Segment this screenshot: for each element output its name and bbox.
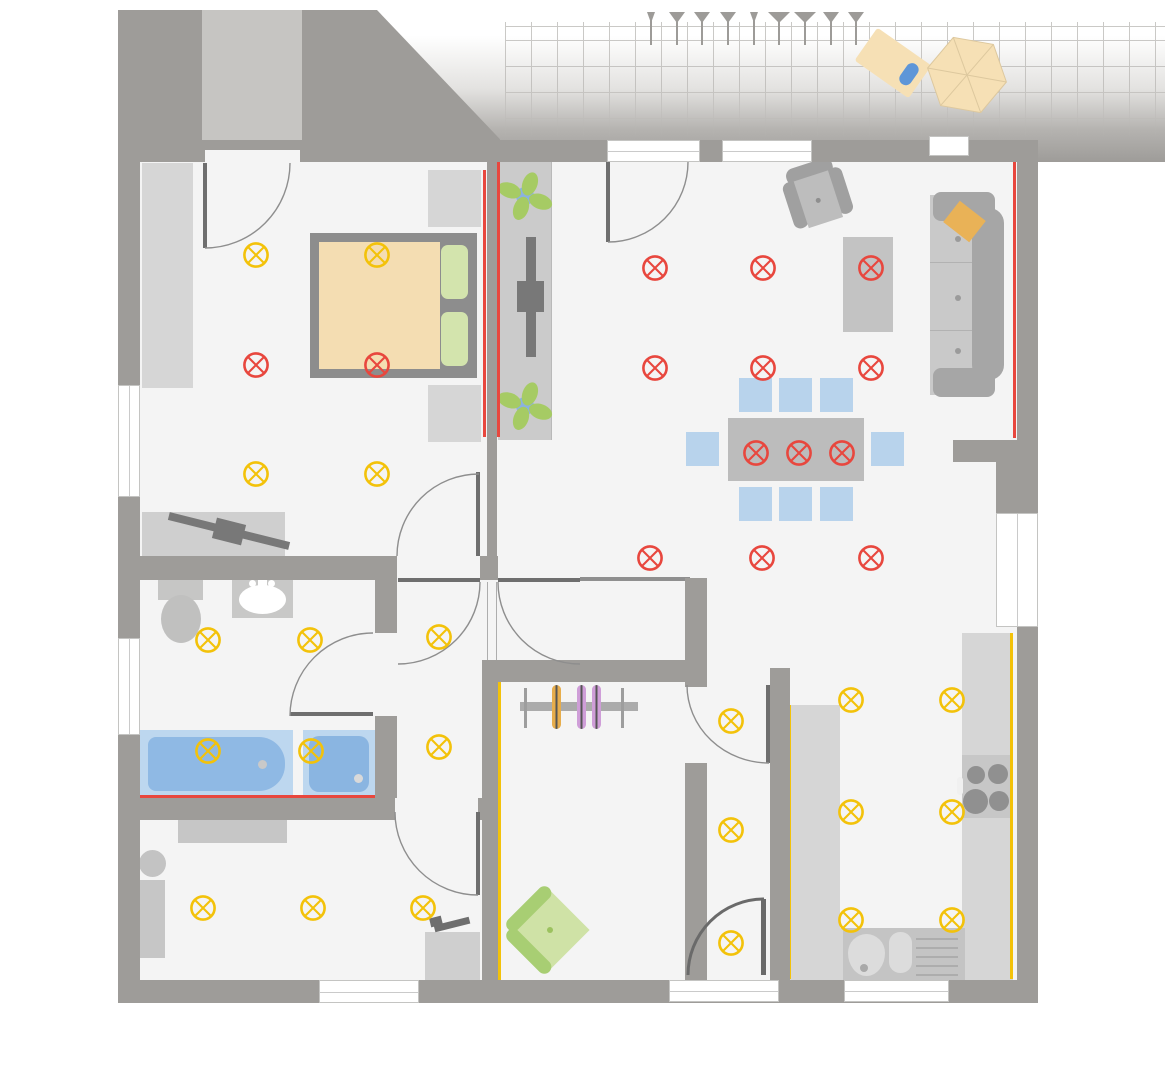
sofa-button	[955, 295, 961, 301]
wall-dressing-west	[482, 660, 498, 1003]
wall-bathroom-east-upper	[375, 580, 397, 633]
sofa-armrest-bottom	[933, 368, 995, 397]
ceiling-light-yellow[interactable]	[938, 686, 966, 714]
wall-bedroom-south-pier	[480, 556, 498, 580]
bathroom-sink-counter[interactable]	[232, 578, 293, 618]
ceiling-light-red[interactable]	[641, 354, 669, 382]
ceiling-light-red[interactable]	[857, 254, 885, 282]
ceiling-light-yellow[interactable]	[194, 737, 222, 765]
ceiling-light-yellow[interactable]	[297, 737, 325, 765]
radiator-strip-red	[497, 162, 500, 437]
sofa-backrest	[972, 208, 1004, 380]
burner	[967, 766, 985, 784]
led-strip-yellow	[498, 682, 501, 1003]
shower-drain	[354, 774, 363, 783]
window-living-north	[722, 140, 812, 162]
window-niche-north	[929, 136, 969, 156]
fence-tick-triangle	[794, 12, 816, 23]
stove-handle	[957, 777, 963, 795]
ceiling-light-red[interactable]	[857, 354, 885, 382]
wall-right-inner	[996, 462, 1017, 513]
living-tv-mount	[517, 281, 544, 312]
sink-faucet	[249, 580, 256, 587]
dining-chair[interactable]	[686, 432, 719, 466]
sink-faucet	[268, 580, 275, 587]
rail-tick	[621, 688, 624, 728]
ceiling-light-yellow[interactable]	[717, 929, 745, 957]
ceiling-light-yellow[interactable]	[938, 906, 966, 934]
ceiling-light-yellow[interactable]	[194, 626, 222, 654]
drainer-line	[916, 974, 958, 976]
study-round-chair[interactable]	[139, 850, 166, 877]
fence-tick-triangle	[669, 12, 685, 23]
fence-tick-triangle	[720, 12, 736, 23]
ceiling-light-red[interactable]	[748, 544, 776, 572]
stove[interactable]	[962, 755, 1013, 818]
fence-tick-triangle	[848, 12, 864, 23]
window-kitchen-south	[844, 980, 949, 1002]
bed-frame[interactable]	[310, 233, 477, 378]
wall-dressing-north	[482, 660, 690, 682]
ceiling-light-yellow[interactable]	[938, 798, 966, 826]
vestibule-doorway	[205, 150, 300, 162]
window-bathroom-west	[118, 638, 140, 735]
dining-sideboard[interactable]	[843, 237, 893, 332]
ceiling-light-red[interactable]	[363, 351, 391, 379]
wall-bathroom-east-lower	[375, 716, 397, 798]
kitchen-sink-unit[interactable]	[843, 928, 965, 980]
parasol[interactable]	[925, 33, 1011, 119]
partition-corridor-entry	[487, 582, 497, 660]
nightstand-top[interactable]	[428, 170, 481, 227]
rail-tick	[524, 688, 527, 728]
wall-hallway-west-lower	[685, 763, 707, 980]
ceiling-light-yellow[interactable]	[242, 241, 270, 269]
kitchen-sink-basin2	[889, 932, 912, 973]
stairwell-vestibule	[202, 10, 302, 150]
entrance-opening-south[interactable]	[669, 980, 779, 1002]
hanger-purple[interactable]	[577, 685, 586, 729]
ceiling-light-yellow[interactable]	[837, 686, 865, 714]
lounger-pillow	[897, 61, 921, 88]
window-bedroom-west	[118, 385, 140, 497]
hanger-purple[interactable]	[592, 685, 601, 729]
burner	[988, 764, 1008, 784]
burner	[989, 791, 1009, 811]
window-study-south	[319, 980, 419, 1003]
fence-tick-triangle	[750, 12, 758, 23]
wall-bedroom-south	[140, 556, 397, 580]
dining-chair[interactable]	[871, 432, 904, 466]
led-strip-yellow	[1010, 633, 1013, 979]
ceiling-light-yellow[interactable]	[717, 816, 745, 844]
dining-chair[interactable]	[820, 378, 853, 412]
ceiling-light-yellow[interactable]	[363, 241, 391, 269]
kitchen-sink-drain	[860, 964, 868, 972]
ceiling-light-yellow[interactable]	[242, 460, 270, 488]
wall-kitchen-west	[770, 668, 790, 980]
dining-chair[interactable]	[779, 487, 812, 521]
wall-nib-right	[953, 440, 1017, 462]
sofa-button	[955, 236, 961, 242]
dining-chair[interactable]	[739, 378, 772, 412]
study-shelf[interactable]	[140, 880, 165, 958]
fence-tick-triangle	[768, 12, 790, 23]
wall-bathroom-south	[118, 798, 395, 820]
fence-tick-triangle	[647, 12, 655, 23]
bed-pillow-2	[441, 312, 468, 366]
sofa-button	[955, 348, 961, 354]
bathtub-drain	[258, 760, 267, 769]
ceiling-light-yellow[interactable]	[717, 707, 745, 735]
ceiling-light-red[interactable]	[641, 254, 669, 282]
fence-tick-triangle	[694, 12, 710, 23]
ceiling-light-red[interactable]	[636, 544, 664, 572]
study-sideboard[interactable]	[178, 820, 287, 843]
ceiling-light-yellow[interactable]	[409, 894, 437, 922]
bed-pillow-1	[441, 245, 468, 299]
ceiling-light-yellow[interactable]	[299, 894, 327, 922]
ceiling-light-yellow[interactable]	[189, 894, 217, 922]
drainer-line	[916, 965, 958, 967]
ceiling-light-red[interactable]	[742, 439, 770, 467]
wall-left	[118, 140, 140, 1003]
ceiling-light-red[interactable]	[749, 254, 777, 282]
drainer-line	[916, 956, 958, 958]
wall-bedroom-east	[487, 162, 497, 556]
hanger-orange[interactable]	[552, 685, 561, 729]
ceiling-light-yellow[interactable]	[837, 798, 865, 826]
ceiling-light-red[interactable]	[828, 439, 856, 467]
drainer-line	[916, 938, 958, 940]
nightstand-bottom[interactable]	[428, 385, 481, 442]
ceiling-light-red[interactable]	[242, 351, 270, 379]
ceiling-light-yellow[interactable]	[296, 626, 324, 654]
bedroom-wardrobe[interactable]	[142, 163, 193, 388]
terrace-door-opening[interactable]	[607, 140, 700, 162]
fence-tick-triangle	[823, 12, 839, 23]
ceiling-light-yellow[interactable]	[837, 906, 865, 934]
burner	[963, 789, 988, 814]
ceiling-light-red[interactable]	[785, 439, 813, 467]
ceiling-light-red[interactable]	[857, 544, 885, 572]
wall-hallway-west-upper	[685, 578, 707, 687]
ceiling-light-yellow[interactable]	[425, 623, 453, 651]
study-desk[interactable]	[425, 932, 480, 980]
radiator-strip-red	[483, 170, 486, 437]
dining-chair[interactable]	[820, 487, 853, 521]
ceiling-light-yellow[interactable]	[363, 460, 391, 488]
floor-plan-canvas	[0, 0, 1165, 1080]
terrace-grid	[505, 22, 1165, 140]
ceiling-light-red[interactable]	[749, 354, 777, 382]
radiator-strip-red	[1013, 162, 1016, 438]
window-living-east	[996, 513, 1038, 627]
ceiling-light-yellow[interactable]	[425, 733, 453, 761]
wall-divider-living-entry	[580, 577, 690, 581]
dining-chair[interactable]	[779, 378, 812, 412]
drainer-line	[916, 947, 958, 949]
dining-chair[interactable]	[739, 487, 772, 521]
